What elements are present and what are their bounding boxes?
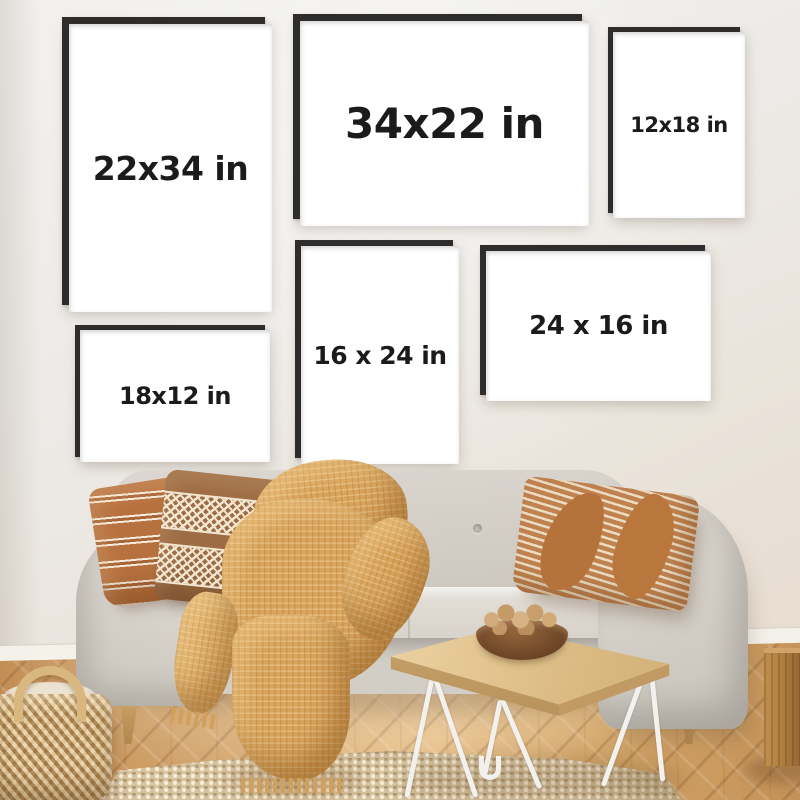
frame-size-label: 12x18 in xyxy=(630,113,727,137)
wood-block-stool xyxy=(764,648,800,766)
frame-size-label: 16 x 24 in xyxy=(313,341,446,370)
frame-16x24: 16 x 24 in xyxy=(295,240,453,458)
frame-mat: 22x34 in xyxy=(69,24,272,312)
frame-size-label: 18x12 in xyxy=(119,382,231,410)
frame-size-label: 22x34 in xyxy=(93,149,248,188)
sofa-tuft-button xyxy=(473,524,482,533)
pillow-leaf-pattern-tan xyxy=(512,476,701,613)
frame-mat: 24 x 16 in xyxy=(486,251,711,401)
hairpin-leg-loop xyxy=(479,756,501,780)
living-room-frame-size-mockup: 22x34 in 34x22 in 12x18 in 18x12 in 16 x… xyxy=(0,0,800,800)
throw-blanket-floor-drape xyxy=(232,615,350,780)
frame-12x18: 12x18 in xyxy=(608,27,740,213)
frame-mat: 12x18 in xyxy=(613,32,745,218)
frame-size-label: 34x22 in xyxy=(345,99,544,148)
frame-size-label: 24 x 16 in xyxy=(529,311,668,341)
frame-18x12: 18x12 in xyxy=(75,325,265,457)
frame-24x16: 24 x 16 in xyxy=(480,245,705,395)
frame-mat: 34x22 in xyxy=(300,21,589,226)
frame-22x34: 22x34 in xyxy=(62,17,265,305)
frame-34x22: 34x22 in xyxy=(293,14,582,219)
frame-mat: 18x12 in xyxy=(80,330,270,462)
wall-shadow-left xyxy=(0,0,40,678)
table-floor-shadow xyxy=(398,758,684,800)
frame-mat: 16 x 24 in xyxy=(301,246,459,464)
nuts-in-bowl xyxy=(482,601,562,635)
